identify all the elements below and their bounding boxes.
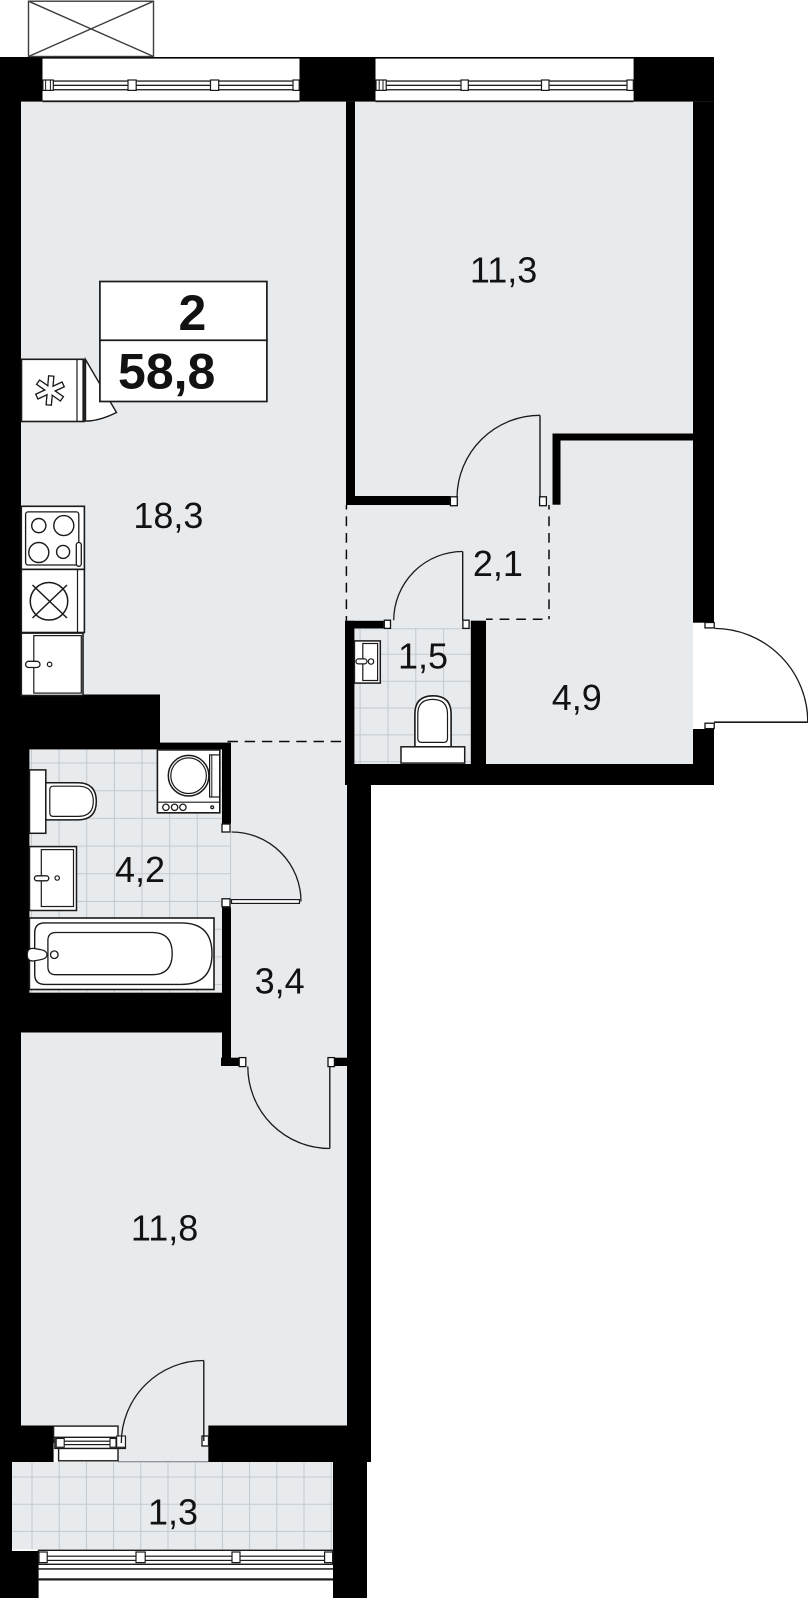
svg-text:18,3: 18,3: [133, 495, 203, 536]
svg-text:3,4: 3,4: [255, 961, 305, 1002]
svg-text:58,8: 58,8: [118, 344, 215, 400]
svg-text:2,1: 2,1: [473, 543, 523, 584]
svg-text:1,3: 1,3: [148, 1492, 198, 1533]
svg-text:4,9: 4,9: [552, 677, 602, 718]
svg-text:11,8: 11,8: [131, 1208, 198, 1249]
svg-text:11,3: 11,3: [470, 250, 537, 291]
svg-text:2: 2: [178, 285, 206, 341]
svg-text:4,2: 4,2: [115, 849, 165, 890]
svg-text:1,5: 1,5: [398, 636, 448, 677]
